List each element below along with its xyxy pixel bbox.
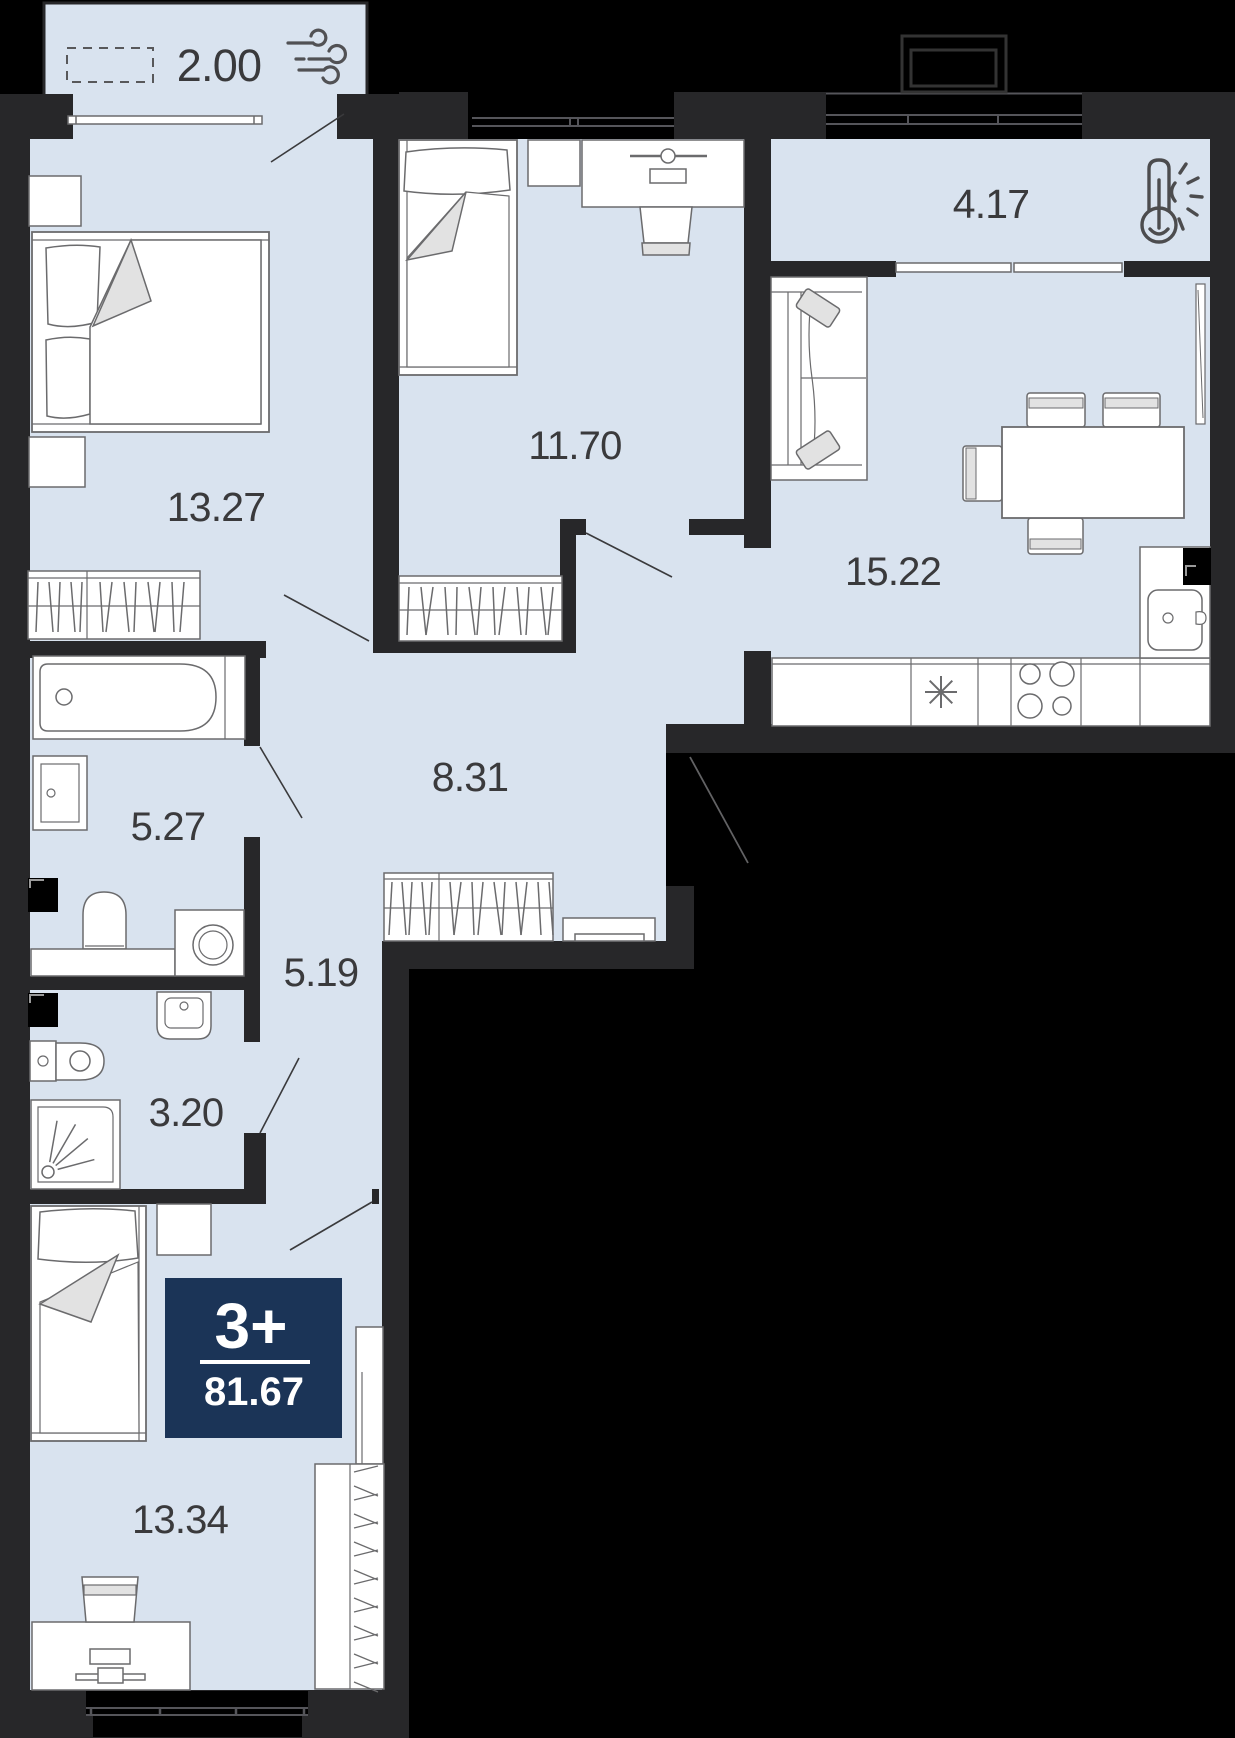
svg-text:13.34: 13.34 (132, 1498, 229, 1542)
svg-text:81.67: 81.67 (204, 1370, 304, 1414)
svg-text:5.27: 5.27 (131, 805, 206, 849)
svg-text:2.00: 2.00 (177, 40, 261, 91)
svg-text:5.19: 5.19 (284, 951, 359, 995)
svg-text:3+: 3+ (215, 1290, 288, 1362)
svg-text:11.70: 11.70 (528, 424, 621, 468)
svg-text:4.17: 4.17 (953, 181, 1030, 227)
svg-text:8.31: 8.31 (432, 754, 509, 800)
svg-text:15.22: 15.22 (845, 550, 941, 594)
svg-text:13.27: 13.27 (167, 484, 266, 530)
svg-text:3.20: 3.20 (149, 1091, 224, 1135)
